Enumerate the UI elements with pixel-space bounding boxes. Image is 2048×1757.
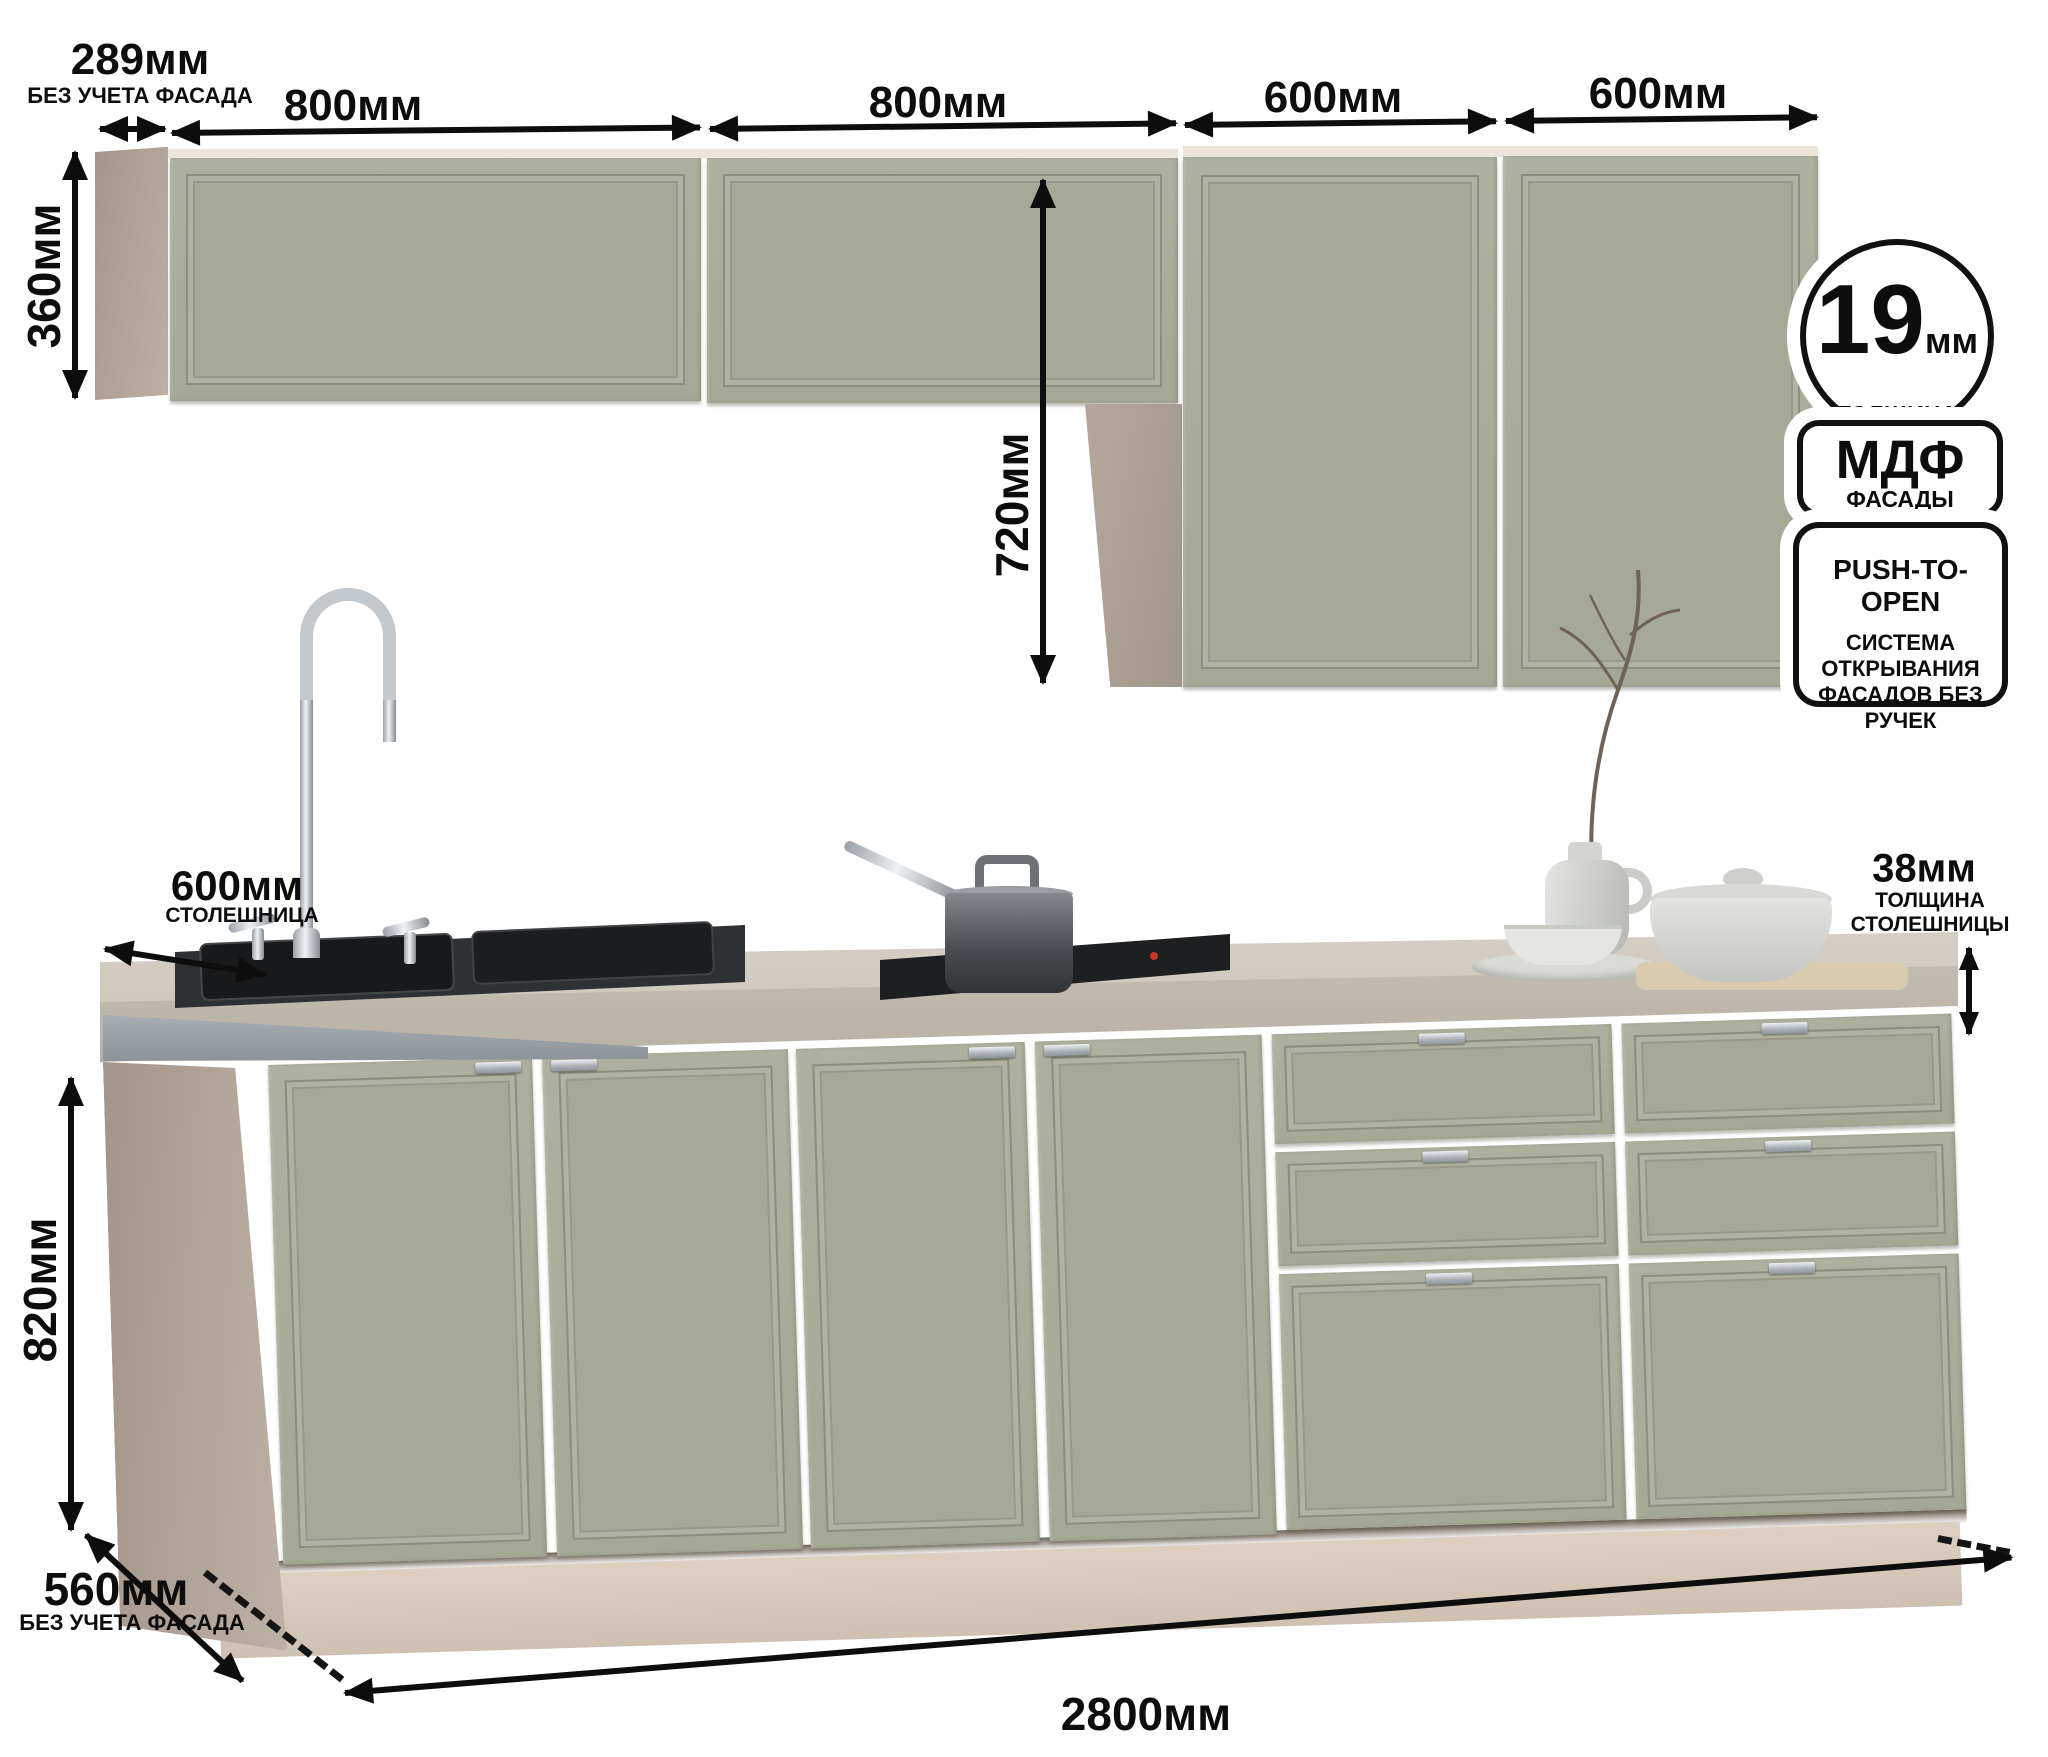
base-door-1-panel: [285, 1073, 531, 1548]
drawer-col1-mid-handle[interactable]: [1422, 1150, 1468, 1162]
base-door-1[interactable]: [268, 1057, 547, 1565]
dim-820-label: 820мм: [13, 1218, 67, 1363]
branch-decor: [1530, 540, 1690, 880]
badge-mdf-subtitle: ФАСАДЫ: [1803, 486, 1997, 513]
drawer-col1-bottom-handle[interactable]: [1426, 1272, 1472, 1284]
dim-820-arrow: [68, 1078, 74, 1530]
dim-38-label: 38мм: [1872, 847, 1976, 892]
dim-360-label: 360мм: [17, 204, 71, 349]
wall-flap-door-1[interactable]: [170, 158, 701, 401]
faucet-lever-left-body: [252, 928, 264, 960]
wall-tall-door-1[interactable]: [1183, 157, 1497, 687]
badge-mdf-title: МДФ: [1803, 434, 1997, 486]
base-door-3-panel: [812, 1058, 1023, 1532]
drawer-col1-bottom[interactable]: [1279, 1264, 1627, 1530]
base-door-3[interactable]: [796, 1042, 1040, 1549]
upper-cabinet-top-edge: [168, 149, 1178, 158]
wall-flap-door-1-panel: [186, 174, 685, 385]
drawer-col1-top-handle[interactable]: [1419, 1032, 1465, 1044]
base-door-2[interactable]: [542, 1049, 803, 1556]
base-door-4-panel: [1051, 1051, 1260, 1525]
pot-body: [945, 893, 1073, 993]
dim-289-caption: БЕЗ УЧЕТА ФАСАДА: [27, 83, 252, 109]
dim-2800-label: 2800мм: [1061, 1687, 1231, 1741]
wall-flap-door-2[interactable]: [707, 158, 1178, 403]
drawer-col2-bottom-panel: [1641, 1266, 1954, 1507]
dim-600b-arrow: [1506, 114, 1817, 124]
base-door-2-panel: [558, 1066, 786, 1540]
badge-facade-thickness: 19мм ТОЛЩИНА ФАСАДА: [1800, 239, 1994, 433]
dim-38-caption2: СТОЛЕШНИЦЫ: [1851, 913, 2010, 937]
drawer-col1-mid-panel: [1288, 1154, 1607, 1254]
badge-push-line1: СИСТЕМА: [1799, 630, 2002, 656]
dim-38-caption1: ТОЛЩИНА: [1875, 889, 1985, 913]
badge-push-line3: ФАСАДОВ БЕЗ: [1799, 682, 2002, 708]
faucet-lever-right-body: [404, 932, 416, 964]
kitchen-dimension-diagram: 289мм БЕЗ УЧЕТА ФАСАДА 800мм 800мм 600мм…: [0, 0, 2048, 1757]
wall-flap-door-2-panel: [723, 174, 1162, 387]
badge-thickness-value: 19: [1816, 264, 1925, 374]
upper-side-panel: [95, 147, 168, 400]
dim-289-arrow: [100, 126, 165, 132]
dim-360-arrow: [72, 152, 78, 398]
badge-push-to-open: PUSH-TO-OPEN СИСТЕМА ОТКРЫВАНИЯ ФАСАДОВ …: [1793, 522, 2008, 707]
dim-720-arrow: [1040, 180, 1046, 683]
dim-600a-label: 600мм: [1264, 73, 1403, 123]
base-door-1-handle[interactable]: [475, 1061, 521, 1073]
base-door-2-handle[interactable]: [551, 1059, 597, 1071]
dim-289-label: 289мм: [71, 35, 210, 85]
dim-800b-label: 800мм: [869, 78, 1008, 128]
dim-720-label: 720мм: [985, 433, 1039, 578]
badge-push-line4: РУЧЕК: [1799, 708, 2002, 734]
drawer-col2-mid-panel: [1637, 1144, 1946, 1243]
tall-cabinet-side-filler: [1085, 404, 1182, 687]
badge-push-line2: ОТКРЫВАНИЯ: [1799, 656, 2002, 682]
faucet-spout: [383, 700, 396, 742]
dim-600b-label: 600мм: [1589, 69, 1728, 119]
drawer-col1-bottom-panel: [1291, 1276, 1614, 1518]
drawer-col1-top-panel: [1284, 1036, 1602, 1132]
drawer-col2-top-panel: [1634, 1026, 1942, 1121]
badge-thickness-unit: мм: [1925, 320, 1978, 361]
wall-tall-door-1-panel: [1201, 175, 1479, 669]
drawer-col2-top-handle[interactable]: [1761, 1022, 1807, 1034]
base-door-4[interactable]: [1035, 1035, 1277, 1542]
base-door-4-handle[interactable]: [1044, 1044, 1090, 1056]
dim-38-arrow: [1966, 948, 1972, 1034]
base-door-3-handle[interactable]: [969, 1046, 1015, 1058]
hob-indicator-light: [1150, 952, 1158, 960]
faucet-arc: [300, 588, 396, 708]
dim-600w-caption: СТОЛЕШНИЦА: [165, 904, 318, 928]
dim-800a-label: 800мм: [284, 81, 423, 131]
sink-bowl-right: [471, 921, 715, 985]
faucet-base: [293, 928, 320, 958]
drawer-col2-bottom[interactable]: [1629, 1253, 1967, 1519]
drawer-col2-bottom-handle[interactable]: [1769, 1262, 1815, 1274]
dim-560-caption: БЕЗ УЧЕТА ФАСАДА: [19, 1610, 244, 1636]
dim-600w-label: 600мм: [171, 862, 303, 910]
drawer-col2-mid-handle[interactable]: [1765, 1140, 1811, 1152]
dim-800a-arrow: [172, 124, 700, 136]
dim-600a-arrow: [1185, 118, 1496, 128]
badge-push-title: PUSH-TO-OPEN: [1799, 554, 2002, 618]
badge-mdf: МДФ ФАСАДЫ: [1797, 420, 2003, 517]
